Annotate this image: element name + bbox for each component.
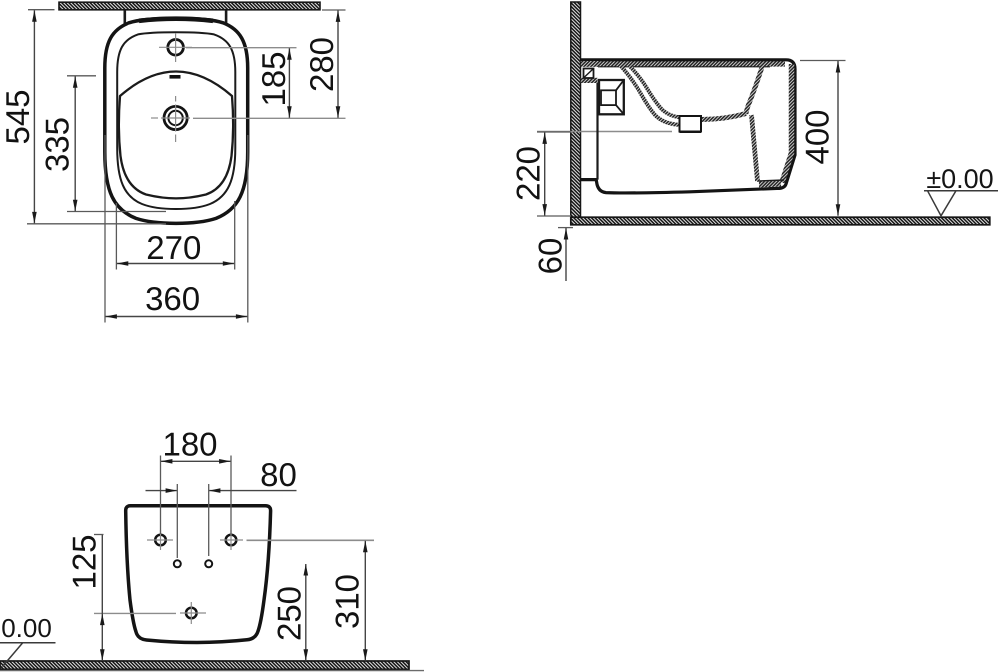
svg-text:80: 80 <box>260 456 297 493</box>
svg-text:125: 125 <box>66 534 103 589</box>
svg-text:335: 335 <box>39 117 76 172</box>
svg-text:220: 220 <box>510 146 547 201</box>
svg-text:0.00: 0.00 <box>1 613 52 643</box>
svg-text:280: 280 <box>303 37 340 92</box>
svg-text:185: 185 <box>255 51 292 106</box>
svg-text:270: 270 <box>146 229 201 266</box>
svg-text:60: 60 <box>532 238 569 275</box>
svg-text:310: 310 <box>329 574 366 629</box>
svg-text:±0.00: ±0.00 <box>926 164 993 194</box>
svg-text:400: 400 <box>799 109 836 164</box>
svg-text:250: 250 <box>271 586 308 641</box>
svg-text:180: 180 <box>162 426 217 463</box>
svg-text:360: 360 <box>145 280 200 317</box>
svg-text:545: 545 <box>0 89 36 144</box>
